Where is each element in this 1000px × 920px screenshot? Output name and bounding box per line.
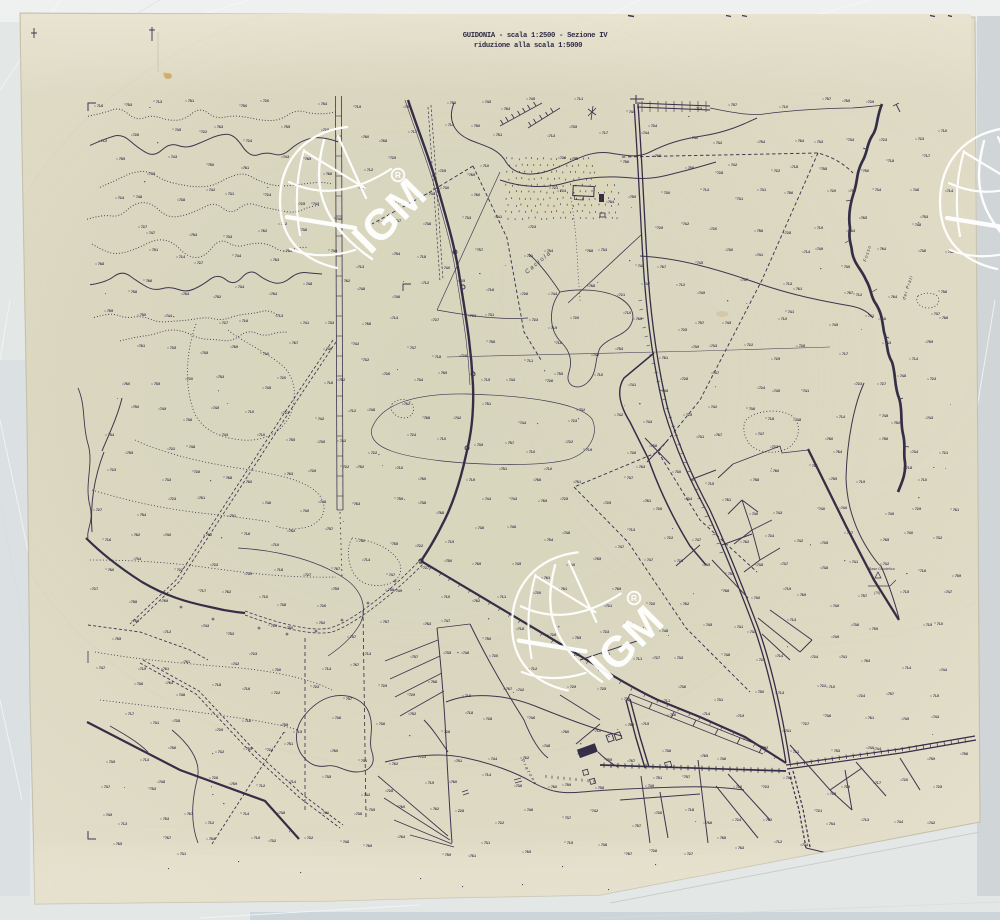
svg-text:71.9: 71.9 bbox=[254, 836, 260, 840]
svg-text:72.5: 72.5 bbox=[605, 501, 611, 505]
svg-text:71.6: 71.6 bbox=[327, 381, 333, 385]
svg-text:75.7: 75.7 bbox=[888, 692, 894, 696]
svg-text:72.0: 72.0 bbox=[187, 377, 193, 381]
svg-text:72.5: 72.5 bbox=[686, 413, 692, 417]
svg-text:75.3: 75.3 bbox=[163, 817, 169, 821]
svg-text:74.9: 74.9 bbox=[160, 407, 166, 411]
svg-text:74.6: 74.6 bbox=[529, 716, 535, 720]
svg-text:74.4: 74.4 bbox=[520, 421, 526, 425]
svg-text:76.5: 76.5 bbox=[595, 557, 601, 561]
svg-text:76.9: 76.9 bbox=[615, 587, 621, 591]
svg-text:73.3: 73.3 bbox=[677, 656, 683, 660]
svg-text:71.9: 71.9 bbox=[738, 714, 744, 718]
svg-text:74.1: 74.1 bbox=[630, 383, 636, 387]
svg-text:71.8: 71.8 bbox=[888, 159, 894, 163]
svg-text:72.7: 72.7 bbox=[92, 587, 98, 591]
svg-text:71.9: 71.9 bbox=[785, 587, 791, 591]
svg-text:72.6: 72.6 bbox=[320, 604, 326, 608]
svg-text:71.4: 71.4 bbox=[804, 250, 810, 254]
svg-text:74.2: 74.2 bbox=[353, 342, 359, 346]
svg-text:74.1: 74.1 bbox=[803, 389, 809, 393]
svg-text:76.5: 76.5 bbox=[883, 538, 889, 542]
svg-text:75.5: 75.5 bbox=[574, 653, 580, 657]
svg-text:76.0: 76.0 bbox=[551, 785, 557, 789]
svg-text:76.7: 76.7 bbox=[353, 663, 359, 667]
svg-text:71.0: 71.0 bbox=[829, 685, 835, 689]
svg-text:74.2: 74.2 bbox=[209, 188, 215, 192]
svg-text:76.0: 76.0 bbox=[451, 780, 457, 784]
svg-text:71.1: 71.1 bbox=[527, 359, 533, 363]
svg-text:76.1: 76.1 bbox=[243, 166, 249, 170]
svg-text:74.9: 74.9 bbox=[396, 589, 402, 593]
svg-text:72.9: 72.9 bbox=[246, 572, 252, 576]
svg-text:76.3: 76.3 bbox=[849, 229, 855, 233]
svg-text:73.2: 73.2 bbox=[307, 836, 313, 840]
svg-text:76.1: 76.1 bbox=[868, 716, 874, 720]
svg-text:76.0: 76.0 bbox=[563, 730, 569, 734]
svg-text:74.3: 74.3 bbox=[511, 497, 517, 501]
svg-text:73.3: 73.3 bbox=[328, 321, 334, 325]
svg-text:76.4: 76.4 bbox=[836, 450, 842, 454]
svg-text:74.3: 74.3 bbox=[283, 155, 289, 159]
svg-text:72.5: 72.5 bbox=[681, 328, 687, 332]
svg-text:73.6: 73.6 bbox=[326, 347, 332, 351]
svg-text:75.8: 75.8 bbox=[131, 290, 137, 294]
svg-text:76.7: 76.7 bbox=[187, 812, 193, 816]
svg-text:74.5: 74.5 bbox=[265, 386, 271, 390]
svg-text:72.3: 72.3 bbox=[251, 652, 257, 656]
svg-text:76.2: 76.2 bbox=[474, 599, 480, 603]
svg-text:71.8: 71.8 bbox=[906, 466, 912, 470]
svg-text:74.8: 74.8 bbox=[136, 195, 142, 199]
svg-text:76.5: 76.5 bbox=[116, 842, 122, 846]
svg-text:74.1: 74.1 bbox=[496, 215, 502, 219]
svg-text:73.5: 73.5 bbox=[369, 808, 375, 812]
svg-text:72.4: 72.4 bbox=[859, 694, 865, 698]
svg-text:73.1: 73.1 bbox=[785, 729, 791, 733]
svg-text:71.0: 71.0 bbox=[262, 595, 268, 599]
svg-text:76.8: 76.8 bbox=[662, 389, 668, 393]
svg-text:75.8: 75.8 bbox=[282, 723, 288, 727]
svg-text:75.1: 75.1 bbox=[287, 742, 293, 746]
svg-text:75.5: 75.5 bbox=[127, 451, 133, 455]
svg-text:76.1: 76.1 bbox=[163, 667, 169, 671]
svg-text:74.9: 74.9 bbox=[903, 717, 909, 721]
svg-text:71.7: 71.7 bbox=[924, 154, 930, 158]
svg-text:73.4: 73.4 bbox=[686, 497, 692, 501]
svg-text:74.1: 74.1 bbox=[841, 655, 847, 659]
svg-text:74.7: 74.7 bbox=[758, 432, 764, 436]
svg-text:72.4: 72.4 bbox=[410, 433, 416, 437]
svg-text:72.3: 72.3 bbox=[881, 138, 887, 142]
svg-text:73.3: 73.3 bbox=[817, 140, 823, 144]
svg-text:74.7: 74.7 bbox=[644, 282, 650, 286]
svg-text:72.9: 72.9 bbox=[440, 169, 446, 173]
svg-text:73.2: 73.2 bbox=[218, 750, 224, 754]
svg-text:75.3: 75.3 bbox=[126, 103, 132, 107]
svg-text:72.2: 72.2 bbox=[667, 536, 673, 540]
svg-text:71.4: 71.4 bbox=[243, 812, 249, 816]
svg-text:72.7: 72.7 bbox=[305, 573, 311, 577]
svg-text:74.9: 74.9 bbox=[648, 784, 654, 788]
svg-text:76.1: 76.1 bbox=[725, 498, 731, 502]
svg-text:75.9: 75.9 bbox=[107, 309, 113, 313]
svg-text:72.3: 72.3 bbox=[560, 156, 566, 160]
svg-text:74.1: 74.1 bbox=[303, 321, 309, 325]
svg-text:71.5: 71.5 bbox=[296, 730, 302, 734]
svg-text:76.8: 76.8 bbox=[589, 284, 595, 288]
svg-text:74.5: 74.5 bbox=[882, 414, 888, 418]
svg-text:76.0: 76.0 bbox=[363, 135, 369, 139]
svg-text:76.9: 76.9 bbox=[441, 371, 447, 375]
svg-text:75.0: 75.0 bbox=[359, 539, 365, 543]
svg-text:76.2: 76.2 bbox=[392, 762, 398, 766]
svg-text:76.0: 76.0 bbox=[246, 480, 252, 484]
svg-text:71.2: 71.2 bbox=[350, 409, 356, 413]
svg-text:72.6: 72.6 bbox=[194, 470, 200, 474]
svg-text:71.4: 71.4 bbox=[905, 666, 911, 670]
svg-text:75.5: 75.5 bbox=[392, 542, 398, 546]
svg-text:72.1: 72.1 bbox=[527, 254, 533, 258]
svg-text:71.8: 71.8 bbox=[467, 711, 473, 715]
svg-text:73.7: 73.7 bbox=[410, 346, 416, 350]
svg-text:71.4: 71.4 bbox=[364, 558, 370, 562]
svg-text:75.3: 75.3 bbox=[218, 375, 224, 379]
svg-text:72.8: 72.8 bbox=[486, 717, 492, 721]
svg-text:75.4: 75.4 bbox=[759, 140, 765, 144]
svg-text:75.5: 75.5 bbox=[246, 747, 252, 751]
svg-text:75.6: 75.6 bbox=[882, 437, 888, 441]
svg-text:75.2: 75.2 bbox=[215, 295, 221, 299]
svg-text:75.7: 75.7 bbox=[731, 103, 737, 107]
svg-text:71.8: 71.8 bbox=[688, 808, 694, 812]
svg-text:72.6: 72.6 bbox=[547, 379, 553, 383]
svg-text:74.5: 74.5 bbox=[774, 389, 780, 393]
svg-text:72.7: 72.7 bbox=[423, 566, 429, 570]
svg-text:72.4: 72.4 bbox=[735, 818, 741, 822]
svg-text:71.8: 71.8 bbox=[420, 255, 426, 259]
svg-text:71.0: 71.0 bbox=[941, 129, 947, 133]
svg-text:72.4: 72.4 bbox=[267, 748, 273, 752]
svg-text:75.9: 75.9 bbox=[955, 574, 961, 578]
svg-text:72.5: 72.5 bbox=[600, 687, 606, 691]
svg-text:71.9: 71.9 bbox=[469, 478, 475, 482]
svg-text:74.5: 74.5 bbox=[697, 261, 703, 265]
svg-text:74.4: 74.4 bbox=[875, 747, 881, 751]
svg-text:75.7: 75.7 bbox=[698, 321, 704, 325]
svg-text:73.4: 73.4 bbox=[875, 188, 881, 192]
svg-text:75.0: 75.0 bbox=[474, 124, 480, 128]
svg-text:71.4: 71.4 bbox=[912, 357, 918, 361]
svg-text:71.0: 71.0 bbox=[546, 467, 552, 471]
svg-text:72.2: 72.2 bbox=[274, 691, 280, 695]
svg-text:75.5: 75.5 bbox=[119, 157, 125, 161]
svg-text:74.2: 74.2 bbox=[929, 821, 935, 825]
svg-text:73.1: 73.1 bbox=[484, 841, 490, 845]
svg-text:76.1: 76.1 bbox=[575, 480, 581, 484]
svg-text:76.4: 76.4 bbox=[271, 292, 277, 296]
svg-text:71.5: 71.5 bbox=[271, 624, 277, 628]
svg-text:76.7: 76.7 bbox=[506, 687, 512, 691]
svg-text:71.2: 71.2 bbox=[679, 283, 685, 287]
svg-text:75.7: 75.7 bbox=[684, 775, 690, 779]
svg-text:73.1: 73.1 bbox=[760, 188, 766, 192]
svg-text:76.9: 76.9 bbox=[133, 619, 139, 623]
svg-text:73.8: 73.8 bbox=[179, 198, 185, 202]
svg-text:76.0: 76.0 bbox=[399, 805, 405, 809]
svg-text:71.4: 71.4 bbox=[325, 667, 331, 671]
svg-text:71.6: 71.6 bbox=[670, 713, 676, 717]
svg-text:74.4: 74.4 bbox=[485, 497, 491, 501]
svg-text:72.3: 72.3 bbox=[212, 563, 218, 567]
svg-text:76.6: 76.6 bbox=[535, 478, 541, 482]
svg-text:73.0: 73.0 bbox=[727, 248, 733, 252]
svg-text:71.3: 71.3 bbox=[778, 691, 784, 695]
svg-text:76.3: 76.3 bbox=[864, 659, 870, 663]
svg-text:76.6: 76.6 bbox=[706, 821, 712, 825]
svg-text:71.7: 71.7 bbox=[411, 130, 417, 134]
svg-text:73.8: 73.8 bbox=[280, 603, 286, 607]
svg-text:75.1: 75.1 bbox=[188, 99, 194, 103]
svg-text:73.2: 73.2 bbox=[883, 562, 889, 566]
svg-text:73.5: 73.5 bbox=[202, 351, 208, 355]
svg-text:74.4: 74.4 bbox=[235, 254, 241, 258]
svg-text:76.0: 76.0 bbox=[773, 469, 779, 473]
svg-text:R: R bbox=[395, 170, 401, 180]
svg-text:71.3: 71.3 bbox=[156, 100, 162, 104]
svg-text:73.0: 73.0 bbox=[443, 186, 449, 190]
svg-text:74.6: 74.6 bbox=[527, 808, 533, 812]
svg-text:74.3: 74.3 bbox=[776, 511, 782, 515]
svg-text:73.8: 73.8 bbox=[601, 843, 607, 847]
svg-text:74.0: 74.0 bbox=[629, 110, 635, 114]
svg-text:71.0: 71.0 bbox=[259, 433, 265, 437]
svg-text:74.7: 74.7 bbox=[618, 545, 624, 549]
svg-text:74.3: 74.3 bbox=[509, 378, 515, 382]
svg-text:72.7: 72.7 bbox=[880, 382, 886, 386]
svg-text:73.9: 73.9 bbox=[109, 760, 115, 764]
svg-text:72.4: 72.4 bbox=[812, 655, 818, 659]
svg-text:72.9: 72.9 bbox=[570, 685, 576, 689]
svg-text:73.3: 73.3 bbox=[601, 248, 607, 252]
svg-text:74.2: 74.2 bbox=[731, 163, 737, 167]
svg-text:75.0: 75.0 bbox=[241, 104, 247, 108]
svg-text:71.4: 71.4 bbox=[947, 189, 953, 193]
svg-text:72.2: 72.2 bbox=[498, 821, 504, 825]
svg-text:71.2: 71.2 bbox=[367, 168, 373, 172]
svg-text:74.2: 74.2 bbox=[617, 413, 623, 417]
svg-text:71.0: 71.0 bbox=[597, 373, 603, 377]
svg-text:71.8: 71.8 bbox=[518, 627, 524, 631]
svg-text:72.8: 72.8 bbox=[174, 719, 180, 723]
svg-text:71.2: 71.2 bbox=[101, 139, 107, 143]
svg-text:74.7: 74.7 bbox=[99, 666, 105, 670]
svg-text:76.3: 76.3 bbox=[354, 502, 360, 506]
svg-text:73.7: 73.7 bbox=[934, 312, 940, 316]
svg-text:74.2: 74.2 bbox=[518, 688, 524, 692]
svg-text:72.0: 72.0 bbox=[711, 227, 717, 231]
svg-text:75.4: 75.4 bbox=[829, 822, 835, 826]
svg-text:74.5: 74.5 bbox=[706, 623, 712, 627]
svg-text:72.0: 72.0 bbox=[830, 189, 836, 193]
svg-text:72.1: 72.1 bbox=[606, 604, 612, 608]
svg-text:73.1: 73.1 bbox=[153, 721, 159, 725]
svg-text:75.9: 75.9 bbox=[872, 627, 878, 631]
svg-text:76.5: 76.5 bbox=[704, 563, 710, 567]
svg-text:76.1: 76.1 bbox=[561, 587, 567, 591]
svg-text:72.6: 72.6 bbox=[656, 811, 662, 815]
svg-text:74.3: 74.3 bbox=[222, 433, 228, 437]
svg-text:76.4: 76.4 bbox=[183, 292, 189, 296]
svg-text:Base Geodetica: Base Geodetica bbox=[869, 567, 895, 571]
svg-text:73.1: 73.1 bbox=[786, 776, 792, 780]
svg-text:72.2: 72.2 bbox=[774, 169, 780, 173]
svg-text:75.0: 75.0 bbox=[863, 169, 869, 173]
svg-text:74.7: 74.7 bbox=[713, 371, 719, 375]
svg-text:73.4: 73.4 bbox=[651, 124, 657, 128]
svg-text:75.3: 75.3 bbox=[228, 632, 234, 636]
svg-text:72.3: 72.3 bbox=[772, 445, 778, 449]
svg-text:74.3: 74.3 bbox=[203, 624, 209, 628]
svg-text:72.9: 72.9 bbox=[915, 507, 921, 511]
svg-text:73.2: 73.2 bbox=[363, 358, 369, 362]
svg-text:75.1: 75.1 bbox=[496, 133, 502, 137]
svg-text:75.1: 75.1 bbox=[152, 248, 158, 252]
svg-text:74.4: 74.4 bbox=[941, 668, 947, 672]
svg-text:71.6: 71.6 bbox=[244, 532, 250, 536]
svg-text:72.0: 72.0 bbox=[902, 778, 908, 782]
svg-text:75.7: 75.7 bbox=[861, 594, 867, 598]
svg-text:74.1: 74.1 bbox=[868, 314, 874, 318]
svg-text:71.2: 71.2 bbox=[208, 821, 214, 825]
svg-text:72.4: 72.4 bbox=[768, 534, 774, 538]
svg-text:72.3: 72.3 bbox=[110, 468, 116, 472]
svg-text:71.9: 71.9 bbox=[448, 540, 454, 544]
svg-text:74.8: 74.8 bbox=[336, 217, 342, 221]
svg-text:76.7: 76.7 bbox=[629, 759, 635, 763]
svg-text:71.9: 71.9 bbox=[859, 480, 865, 484]
svg-text:76.4: 76.4 bbox=[798, 139, 804, 143]
svg-text:73.8: 73.8 bbox=[822, 566, 828, 570]
svg-text:76.7: 76.7 bbox=[626, 852, 632, 856]
svg-text:75.7: 75.7 bbox=[635, 824, 641, 828]
svg-text:71.4: 71.4 bbox=[179, 255, 185, 259]
svg-text:76.1: 76.1 bbox=[323, 811, 329, 815]
svg-text:73.2: 73.2 bbox=[716, 141, 722, 145]
svg-text:71.0: 71.0 bbox=[736, 785, 742, 789]
svg-text:75.5: 75.5 bbox=[115, 637, 121, 641]
svg-text:72.1: 72.1 bbox=[942, 451, 948, 455]
svg-text:75.4: 75.4 bbox=[321, 102, 327, 106]
svg-text:74.3: 74.3 bbox=[171, 155, 177, 159]
svg-text:73.9: 73.9 bbox=[477, 443, 483, 447]
svg-text:75.2: 75.2 bbox=[358, 465, 364, 469]
svg-text:71.3: 71.3 bbox=[863, 818, 869, 822]
svg-text:71.3: 71.3 bbox=[365, 652, 371, 656]
svg-text:76.4: 76.4 bbox=[399, 835, 405, 839]
svg-text:74.8: 74.8 bbox=[343, 840, 349, 844]
svg-text:75.0: 75.0 bbox=[208, 163, 214, 167]
svg-text:72.8: 72.8 bbox=[682, 377, 688, 381]
svg-text:71.4: 71.4 bbox=[703, 188, 709, 192]
svg-text:73.9: 73.9 bbox=[693, 345, 699, 349]
svg-text:72.5: 72.5 bbox=[459, 279, 465, 283]
svg-text:71.3: 71.3 bbox=[143, 758, 149, 762]
svg-text:75.2: 75.2 bbox=[410, 712, 416, 716]
svg-text:GUIDONIA - scala 1:2500 - Sezi: GUIDONIA - scala 1:2500 - Sezione IV bbox=[463, 32, 608, 40]
svg-text:74.3: 74.3 bbox=[885, 341, 891, 345]
svg-text:71.6: 71.6 bbox=[244, 687, 250, 691]
svg-text:75.6: 75.6 bbox=[757, 229, 763, 233]
svg-text:72.1: 72.1 bbox=[552, 186, 558, 190]
svg-text:72.3: 72.3 bbox=[571, 419, 577, 423]
svg-text:73.8: 73.8 bbox=[420, 501, 426, 505]
svg-text:76.6: 76.6 bbox=[365, 322, 371, 326]
svg-text:72.3: 72.3 bbox=[532, 318, 538, 322]
svg-text:73.1: 73.1 bbox=[737, 197, 743, 201]
svg-text:75.7: 75.7 bbox=[327, 527, 333, 531]
svg-text:73.4: 73.4 bbox=[750, 630, 756, 634]
svg-text:74.9: 74.9 bbox=[106, 813, 112, 817]
svg-text:71.9: 71.9 bbox=[817, 226, 823, 230]
svg-text:71.0: 71.0 bbox=[781, 317, 787, 321]
svg-text:76.0: 76.0 bbox=[108, 568, 114, 572]
svg-text:76.2: 76.2 bbox=[766, 818, 772, 822]
svg-text:74.2: 74.2 bbox=[455, 416, 461, 420]
svg-text:73.3: 73.3 bbox=[465, 216, 471, 220]
svg-text:73.6: 73.6 bbox=[920, 249, 926, 253]
svg-text:72.2: 72.2 bbox=[747, 343, 753, 347]
svg-text:73.1: 73.1 bbox=[488, 313, 494, 317]
svg-text:71.4: 71.4 bbox=[839, 415, 845, 419]
svg-text:75.6: 75.6 bbox=[688, 166, 694, 170]
svg-text:75.0: 75.0 bbox=[758, 690, 764, 694]
svg-text:73.3: 73.3 bbox=[711, 344, 717, 348]
svg-text:76.9: 76.9 bbox=[628, 723, 634, 727]
svg-text:73.7: 73.7 bbox=[565, 816, 571, 820]
svg-text:72.8: 72.8 bbox=[387, 789, 393, 793]
svg-text:72.6: 72.6 bbox=[212, 776, 218, 780]
svg-text:75.3: 75.3 bbox=[728, 572, 734, 576]
svg-text:74.8: 74.8 bbox=[369, 408, 375, 412]
svg-text:74.2: 74.2 bbox=[233, 662, 239, 666]
svg-text:72.4: 72.4 bbox=[265, 193, 271, 197]
svg-text:76.3: 76.3 bbox=[504, 107, 510, 111]
svg-text:75.6: 75.6 bbox=[450, 101, 456, 105]
svg-text:73.6: 73.6 bbox=[665, 749, 671, 753]
svg-text:73.1: 73.1 bbox=[361, 759, 367, 763]
svg-text:76.0: 76.0 bbox=[124, 382, 130, 386]
svg-text:74.5: 74.5 bbox=[175, 128, 181, 132]
svg-text:74.2: 74.2 bbox=[711, 405, 717, 409]
svg-text:71.9: 71.9 bbox=[140, 667, 146, 671]
svg-text:73.7: 73.7 bbox=[627, 476, 633, 480]
svg-text:74.9: 74.9 bbox=[833, 635, 839, 639]
svg-text:75.8: 75.8 bbox=[821, 167, 827, 171]
svg-text:71.2: 71.2 bbox=[776, 840, 782, 844]
svg-text:74.3: 74.3 bbox=[646, 420, 652, 424]
svg-text:73.6: 73.6 bbox=[516, 784, 522, 788]
svg-text:72.2: 72.2 bbox=[169, 447, 175, 451]
svg-text:76.2: 76.2 bbox=[433, 807, 439, 811]
svg-text:73.5: 73.5 bbox=[170, 346, 176, 350]
svg-text:72.8: 72.8 bbox=[717, 171, 723, 175]
svg-text:76.1: 76.1 bbox=[953, 508, 959, 512]
svg-text:76.9: 76.9 bbox=[162, 599, 168, 603]
svg-text:73.5: 73.5 bbox=[149, 172, 155, 176]
svg-text:74.6: 74.6 bbox=[265, 501, 271, 505]
svg-text:75.2: 75.2 bbox=[580, 752, 586, 756]
